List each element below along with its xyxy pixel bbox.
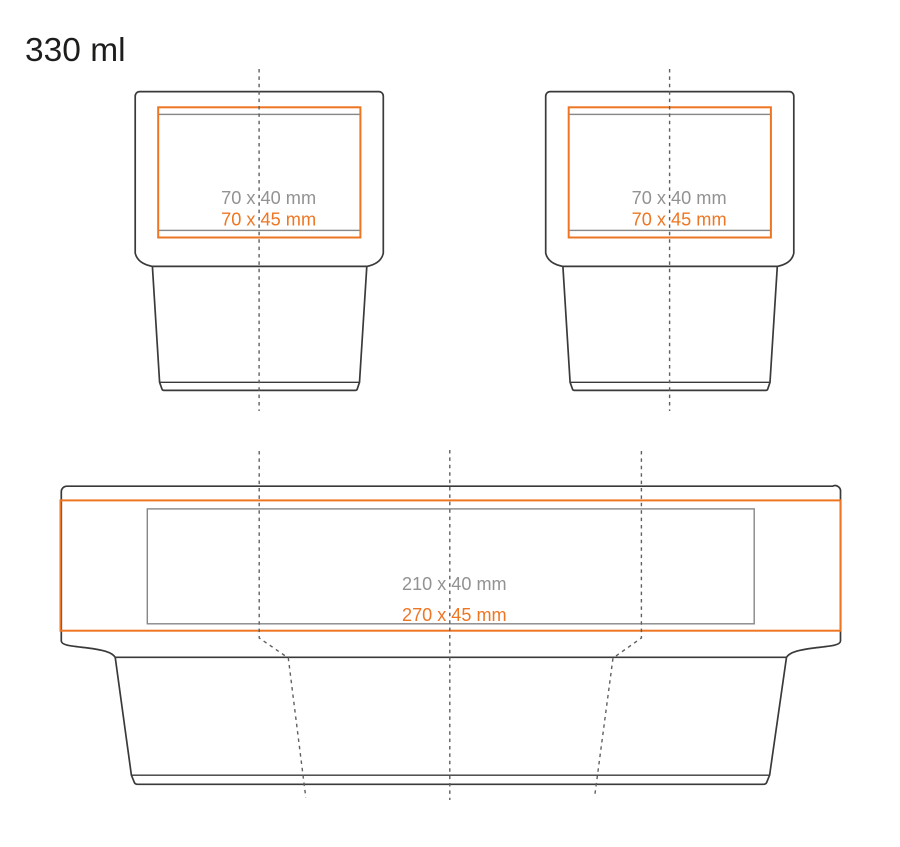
svg-text:330 ml: 330 ml bbox=[25, 32, 126, 69]
svg-text:210 x 40 mm: 210 x 40 mm bbox=[402, 574, 507, 594]
svg-text:270 x 45 mm: 270 x 45 mm bbox=[402, 605, 507, 625]
